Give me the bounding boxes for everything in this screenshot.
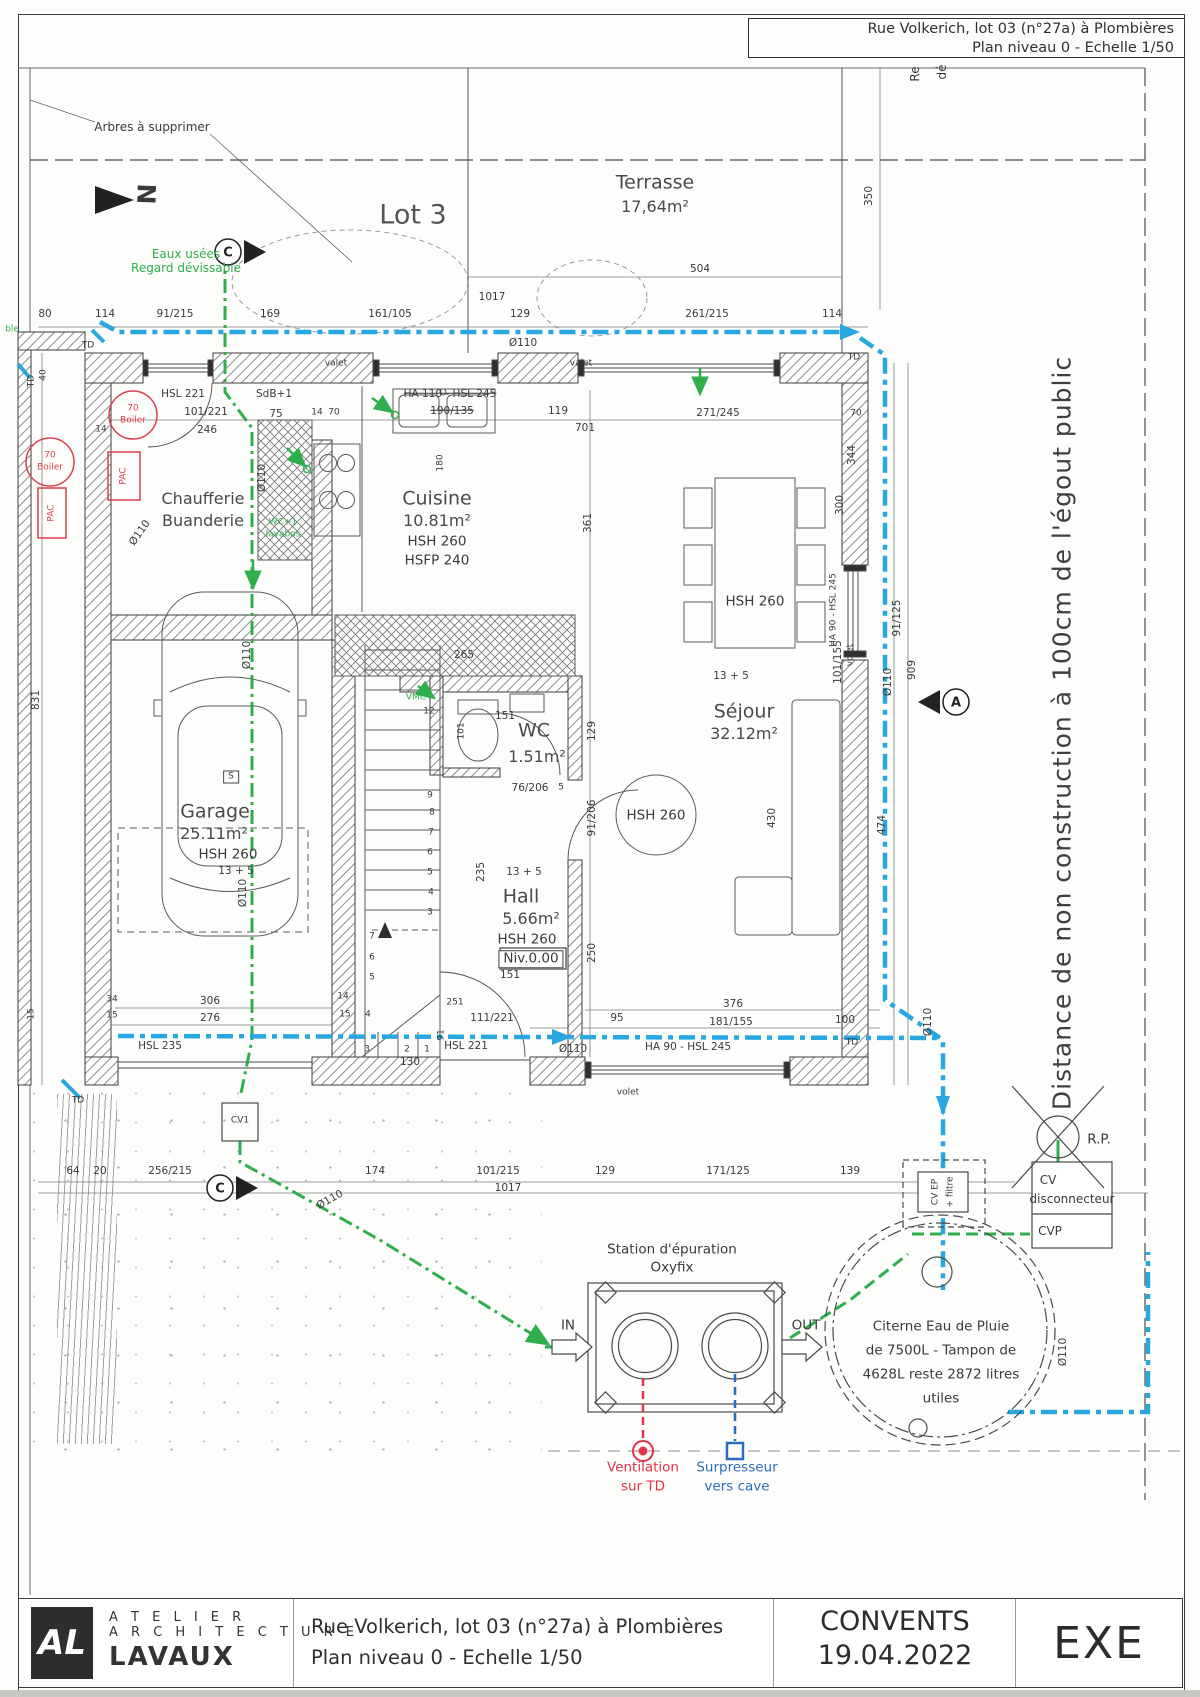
plan-label: Ø110 <box>509 338 537 349</box>
plan-label: VMC <box>406 694 426 703</box>
plan-label: 15 <box>28 1008 37 1019</box>
plan-label: 161/105 <box>368 309 412 320</box>
station-out: OUT <box>792 1319 821 1333</box>
plan-label: 13 + 5 <box>218 866 254 877</box>
plan-label: 70 <box>127 405 138 414</box>
plan-label: 151 <box>495 711 515 722</box>
plan-label: HSL 235 <box>138 1041 182 1052</box>
plan-label: 3 <box>364 1046 370 1055</box>
cv1-box-label: CV1 <box>231 1117 249 1126</box>
plan-label: 20 <box>93 1166 106 1177</box>
plan-label: 114 <box>822 309 842 320</box>
plan-label: 7 <box>428 829 434 838</box>
plan-label: 246 <box>197 425 217 436</box>
plan-label: Ø110 <box>242 641 253 669</box>
plan-label: 76/206 <box>512 783 549 794</box>
vent-label: Ventilation <box>607 1461 679 1475</box>
plan-label: 15 <box>106 1012 117 1021</box>
station-label: Station d'épuration <box>607 1243 737 1257</box>
title-divider <box>293 1599 294 1687</box>
plan-label: vers cave <box>704 1480 769 1494</box>
plan-label: ble <box>5 326 19 335</box>
plan-label: sur TD <box>621 1480 665 1494</box>
plan-label: WC+1 <box>269 519 297 528</box>
plan-label: utiles <box>923 1392 960 1406</box>
plan-label: HSH 260 <box>408 535 467 549</box>
plan-label: 306 <box>200 996 220 1007</box>
plan-label: Ø110 <box>315 1189 345 1212</box>
plan-label: PAC <box>48 504 57 521</box>
plan-label: 130 <box>400 1057 420 1068</box>
plan-label: valet <box>570 360 592 369</box>
annotations-layer: Arbres à supprimerLot 3NEaux uséesRegard… <box>0 0 1200 1697</box>
plan-label: 13 + 5 <box>713 671 749 682</box>
plan-label: lavabos <box>266 531 301 540</box>
floor-plan-sheet: Arbres à supprimerLot 3NEaux uséesRegard… <box>0 0 1200 1697</box>
drawing-header: Rue Volkerich, lot 03 (n°27a) à Plombièr… <box>748 18 1185 58</box>
plan-label: TD <box>72 1097 84 1106</box>
plan-label: 1017 <box>479 292 506 303</box>
station-in: IN <box>561 1319 575 1333</box>
plan-label: 14 <box>311 409 322 418</box>
plan-label: 40 <box>40 369 49 380</box>
client-name: CONVENTS <box>775 1606 1015 1637</box>
plan-label: 235 <box>476 862 487 882</box>
plan-label: 4 <box>365 1011 371 1020</box>
header-scale-line: Plan niveau 0 - Echelle 1/50 <box>749 40 1174 56</box>
plan-label: 5 <box>427 869 433 878</box>
plan-label: HSL 221 <box>161 389 205 400</box>
plan-label: Oxyfix <box>650 1261 693 1275</box>
plan-label: 14 <box>337 993 348 1002</box>
plan-label: 504 <box>690 264 710 275</box>
plan-label: 1.51m² <box>508 749 566 765</box>
plan-label: 701 <box>575 423 595 434</box>
plan-label: 181/155 <box>709 1017 753 1028</box>
plan-label: CV <box>1040 1174 1057 1186</box>
issue-date: 19.04.2022 <box>775 1640 1015 1671</box>
section-c-bottom: C <box>215 1183 225 1196</box>
plan-label: 129 <box>587 721 598 741</box>
plan-label: 4 <box>428 889 434 898</box>
plan-label: disconnecteur <box>1030 1193 1115 1205</box>
plan-label: 300 <box>835 495 846 515</box>
plan-label: Eaux usées <box>152 248 220 260</box>
citerne-label: Citerne Eau de Pluie <box>873 1320 1010 1334</box>
section-c-top: C <box>223 247 233 260</box>
plan-label: 344 <box>847 445 858 465</box>
plan-label: HSH 260 <box>726 595 785 609</box>
plan-label: 101/221 <box>184 407 228 418</box>
plan-label: 12 <box>423 708 434 717</box>
plan-label: TD <box>846 1039 858 1048</box>
plan-label: 75 <box>269 409 282 420</box>
level-datum: Niv.0.00 <box>498 950 563 968</box>
plan-label: HA 90 - HSL 245 <box>645 1042 731 1053</box>
plan-label: 6 <box>427 849 433 858</box>
rp-label: R.P. <box>1087 1133 1111 1147</box>
room-hall: Hall <box>503 888 540 907</box>
plan-label: CV EP <box>932 1179 941 1205</box>
project-line1: Rue Volkerich, lot 03 (n°27a) à Plombièr… <box>311 1611 723 1642</box>
plan-label: Ø110 <box>923 1008 934 1036</box>
plan-label: 350 <box>864 186 875 206</box>
plan-label: HSFP 240 <box>405 554 470 568</box>
plan-label: 1 <box>424 1046 430 1055</box>
plan-label: 271/245 <box>696 408 740 419</box>
plan-label: TD <box>82 342 94 351</box>
client-block: CONVENTS 19.04.2022 <box>775 1599 1015 1671</box>
plan-label: 3 <box>427 909 433 918</box>
plan-label: 265 <box>454 650 474 661</box>
plan-label: Ø110 <box>1058 1338 1069 1366</box>
section-a: A <box>951 697 961 710</box>
plan-label: 70 <box>44 452 55 461</box>
room-terrasse: Terrasse <box>616 174 695 193</box>
sewer-setback-note: Distance de non construction à 100cm de … <box>1050 356 1075 1110</box>
title-divider <box>773 1599 774 1687</box>
plan-label: 2 <box>404 1046 410 1055</box>
plan-label: 7 <box>369 933 375 942</box>
plan-label: HSH 260 <box>199 848 258 862</box>
plan-label: 256/215 <box>148 1166 192 1177</box>
plan-label: 909 <box>907 660 918 680</box>
project-line2: Plan niveau 0 - Echelle 1/50 <box>311 1642 723 1673</box>
project-title: Rue Volkerich, lot 03 (n°27a) à Plombièr… <box>311 1611 723 1673</box>
room-garage: Garage <box>180 803 250 822</box>
room-sejour: Séjour <box>714 703 775 722</box>
plan-label: 101/215 <box>476 1166 520 1177</box>
plan-label: 376 <box>723 999 743 1010</box>
plan-label: 13 + 5 <box>506 867 542 878</box>
plan-label: 180 <box>437 454 446 471</box>
plan-label: 139 <box>840 1166 860 1177</box>
plan-label: de 7500L - Tampon de <box>866 1344 1016 1358</box>
plan-label: 5 <box>558 784 564 793</box>
plan-label: 831 <box>31 690 42 710</box>
plan-label: 361 <box>583 513 594 533</box>
plan-label: volet <box>847 644 856 666</box>
plan-label: 15 <box>339 1011 350 1020</box>
plan-label: 5.66m² <box>502 911 560 927</box>
lot-label: Lot 3 <box>379 202 446 229</box>
plan-label: 17,64m² <box>621 199 689 215</box>
plan-label: Ø110 <box>559 1044 587 1055</box>
plan-label: Re <box>909 66 921 81</box>
plan-label: 151 <box>500 970 520 981</box>
plan-label: Ø110 <box>883 668 894 696</box>
plan-label: PAC <box>120 467 129 484</box>
plan-label: 5 <box>369 974 375 983</box>
plan-label: + filtre <box>947 1176 956 1207</box>
plan-label: 250 <box>587 943 598 963</box>
plan-label: 111/221 <box>470 1013 514 1024</box>
plan-label: HA 110 - HSL 245 <box>404 389 497 400</box>
plan-label: S <box>223 771 239 784</box>
surpresseur-label: Surpresseur <box>696 1461 777 1475</box>
plan-label: 174 <box>365 1166 385 1177</box>
plan-label: 70 <box>850 410 861 419</box>
plan-label: 4628L reste 2872 litres <box>863 1368 1020 1382</box>
plan-label: 95 <box>610 1013 623 1024</box>
plan-label: 100 <box>835 1015 855 1026</box>
plan-label: 80 <box>38 309 51 320</box>
plan-label: Boiler <box>37 464 63 473</box>
plan-label: 171/125 <box>706 1166 750 1177</box>
north-letter: N <box>133 183 159 205</box>
plan-label: valet <box>325 360 347 369</box>
plan-label: 25.11m² <box>180 826 248 842</box>
plan-label: 261/215 <box>685 309 729 320</box>
plan-label: HSL 221 <box>444 1041 488 1052</box>
plan-label: 8 <box>429 809 435 818</box>
plan-label: Ø110 <box>238 879 249 907</box>
plan-label: Regard dévissable <box>131 262 241 274</box>
plan-label: 129 <box>510 309 530 320</box>
firm-logo: AL <box>31 1607 93 1679</box>
plan-label: 64 <box>66 1166 79 1177</box>
plan-label: 10.81m² <box>403 513 471 529</box>
plan-label: 91/206 <box>587 800 598 837</box>
plan-label: 251 <box>446 999 463 1008</box>
plan-label: Boiler <box>120 417 146 426</box>
title-block: AL A T E L I E R A R C H I T E C T U R E… <box>18 1598 1183 1688</box>
plan-label: 190/135 <box>430 406 474 417</box>
plan-label: 14 <box>95 426 106 435</box>
plan-label: 119 <box>548 406 568 417</box>
plan-label: 70 <box>328 409 339 418</box>
plan-label: 32.12m² <box>710 726 778 742</box>
plan-label: 91/125 <box>892 600 903 637</box>
room-wc: WC <box>518 722 550 741</box>
scan-edge <box>0 1690 1200 1697</box>
plan-label: 6 <box>369 954 375 963</box>
plan-label: TD <box>848 354 860 363</box>
room-chaufferie: Chaufferie <box>162 491 245 507</box>
plan-label: CVP <box>1038 1225 1062 1237</box>
plan-label: HSH 260 <box>627 809 686 823</box>
plan-label: volet <box>617 1089 639 1098</box>
plan-label: 430 <box>767 808 778 828</box>
plan-label: 129 <box>595 1166 615 1177</box>
plan-label: Ø110 <box>128 518 153 547</box>
plan-label: 34 <box>106 996 117 1005</box>
plan-label: SdB+1 <box>256 389 292 400</box>
plan-label: 91/215 <box>157 309 194 320</box>
phase-code: EXE <box>1015 1599 1183 1687</box>
plan-label: Buanderie <box>162 513 244 529</box>
plan-label: dé <box>936 65 948 80</box>
firm-logo-monogram: AL <box>38 1623 86 1663</box>
plan-label: Ø110 <box>257 464 268 492</box>
note-arbres: Arbres à supprimer <box>94 121 209 133</box>
plan-label: 9 <box>427 792 433 801</box>
plan-label: 114 <box>95 309 115 320</box>
plan-label: 101 <box>458 722 467 739</box>
plan-label: 169 <box>260 309 280 320</box>
header-project-line: Rue Volkerich, lot 03 (n°27a) à Plombièr… <box>749 21 1174 37</box>
plan-label: HSH 260 <box>498 933 557 947</box>
plan-label: 1017 <box>495 1183 522 1194</box>
room-cuisine: Cuisine <box>402 490 472 509</box>
plan-label: TD <box>28 375 37 387</box>
plan-label: 276 <box>200 1013 220 1024</box>
plan-label: HA 90 - HSL 245 <box>830 573 839 647</box>
plan-label: 474 <box>877 815 888 835</box>
